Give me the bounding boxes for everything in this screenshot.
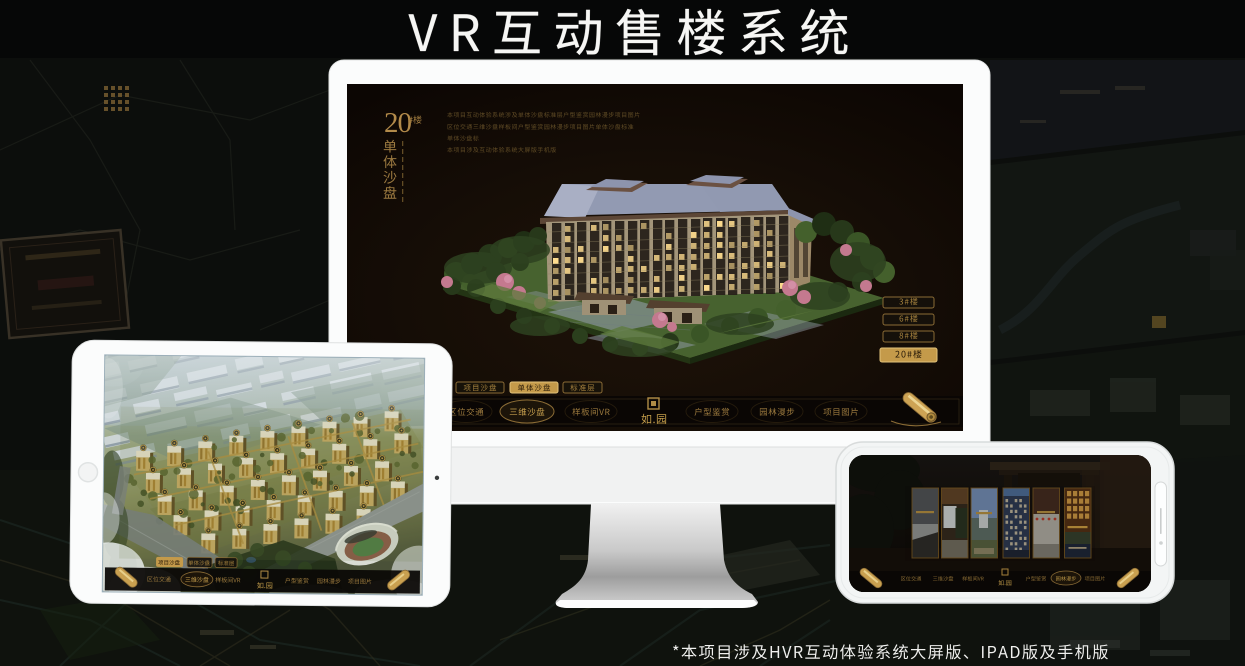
svg-text:20: 20 bbox=[384, 107, 412, 139]
